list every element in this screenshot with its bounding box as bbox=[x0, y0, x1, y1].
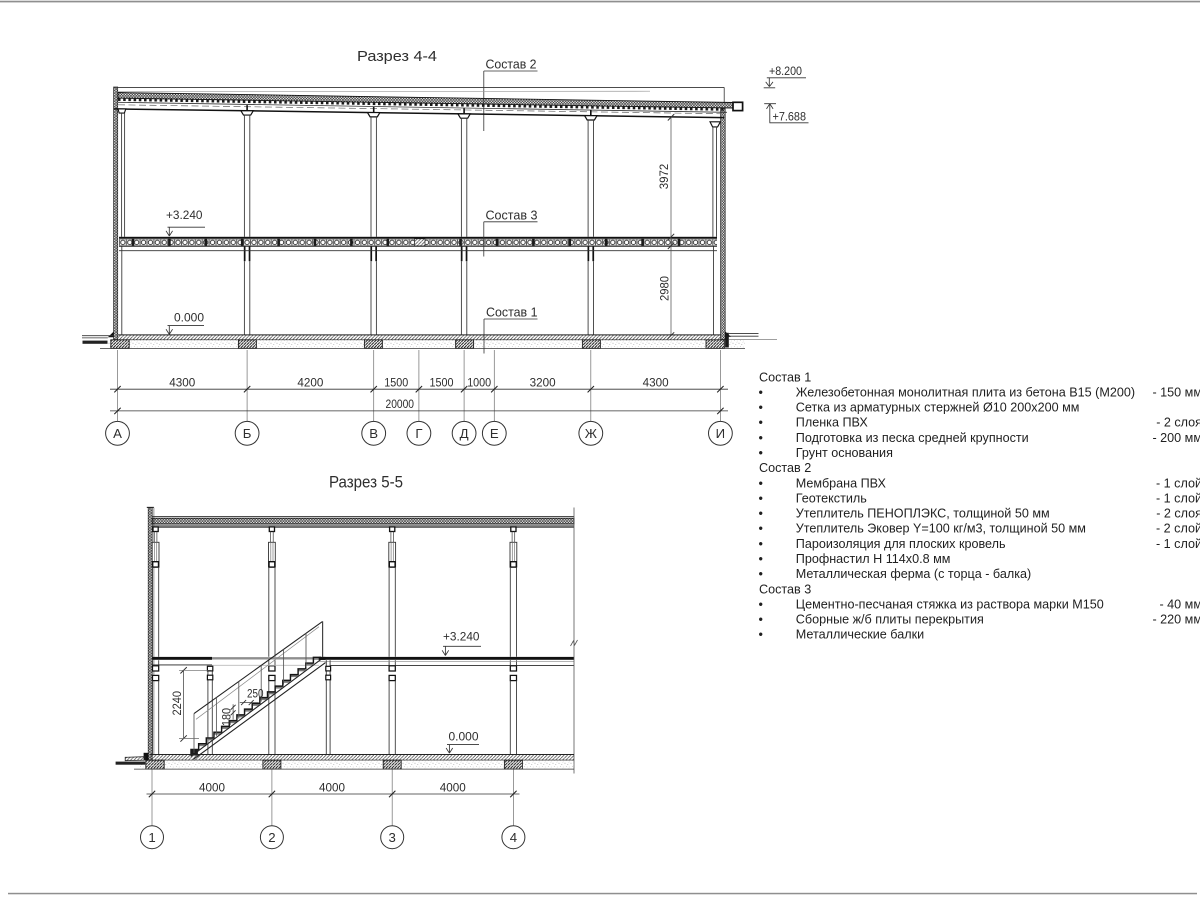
svg-text:•: • bbox=[759, 385, 763, 399]
svg-text:1000: 1000 bbox=[467, 375, 491, 389]
svg-text:1500: 1500 bbox=[430, 375, 454, 389]
svg-text:•: • bbox=[759, 491, 763, 505]
svg-text:Грунт основания: Грунт основания bbox=[796, 446, 893, 460]
svg-text:Разрез 5-5: Разрез 5-5 bbox=[329, 473, 403, 492]
svg-text:1500: 1500 bbox=[384, 375, 408, 389]
svg-text:•: • bbox=[759, 537, 763, 551]
svg-text:В: В bbox=[369, 426, 378, 441]
svg-text:Состав 3: Состав 3 bbox=[759, 582, 811, 596]
svg-text:3200: 3200 bbox=[530, 375, 556, 389]
svg-text:20000: 20000 bbox=[386, 397, 415, 411]
svg-text:- 150 мм: - 150 мм bbox=[1152, 385, 1200, 399]
svg-text:4300: 4300 bbox=[169, 375, 195, 389]
svg-text:0.000: 0.000 bbox=[449, 730, 479, 744]
svg-text:250: 250 bbox=[247, 686, 264, 700]
svg-text:Утеплитель Эковер Y=100 кг/м3,: Утеплитель Эковер Y=100 кг/м3, толщиной … bbox=[796, 522, 1086, 536]
svg-text:2980: 2980 bbox=[657, 276, 671, 301]
svg-text:•: • bbox=[759, 522, 763, 536]
svg-text:+8.200: +8.200 bbox=[769, 64, 802, 78]
svg-text:Мембрана ПВХ: Мембрана ПВХ bbox=[796, 476, 887, 490]
svg-text:Разрез 4-4: Разрез 4-4 bbox=[357, 48, 437, 65]
svg-text:Д: Д bbox=[460, 426, 469, 441]
svg-text:Сетка из арматурных стержней Ø: Сетка из арматурных стержней Ø10 200x200… bbox=[796, 401, 1080, 415]
svg-text:•: • bbox=[759, 431, 763, 445]
svg-text:Металлическая ферма (с торца -: Металлическая ферма (с торца - балка) bbox=[796, 567, 1031, 581]
svg-text:Ж: Ж bbox=[585, 426, 597, 441]
svg-text:+3.240: +3.240 bbox=[443, 629, 480, 643]
svg-text:•: • bbox=[759, 613, 763, 627]
svg-text:3972: 3972 bbox=[657, 164, 671, 190]
svg-text:•: • bbox=[759, 597, 763, 611]
svg-text:Профнастил Н 114x0.8 мм: Профнастил Н 114x0.8 мм bbox=[796, 552, 951, 566]
svg-text:Состав 1: Состав 1 bbox=[759, 370, 811, 384]
svg-text:- 1 слой: - 1 слой bbox=[1156, 537, 1200, 551]
svg-text:Пленка ПВХ: Пленка ПВХ bbox=[796, 416, 869, 430]
svg-text:4200: 4200 bbox=[297, 375, 323, 389]
svg-text:4300: 4300 bbox=[643, 375, 669, 389]
svg-text:0.000: 0.000 bbox=[174, 310, 204, 324]
svg-text:- 2 слоя: - 2 слоя bbox=[1156, 507, 1200, 521]
svg-text:2240: 2240 bbox=[170, 691, 184, 716]
svg-text:•: • bbox=[759, 567, 763, 581]
svg-text:2: 2 bbox=[268, 830, 275, 845]
svg-text:4000: 4000 bbox=[440, 780, 466, 794]
svg-text:4000: 4000 bbox=[319, 780, 345, 794]
svg-text:Состав 1: Состав 1 bbox=[486, 305, 538, 320]
svg-text:•: • bbox=[759, 416, 763, 430]
svg-text:Цементно-песчаная стяжка из ра: Цементно-песчаная стяжка из раствора мар… bbox=[796, 597, 1104, 611]
svg-text:Подготовка из песка средней кр: Подготовка из песка средней крупности bbox=[796, 431, 1029, 445]
svg-text:Состав 2: Состав 2 bbox=[486, 57, 537, 72]
svg-text:Состав 3: Состав 3 bbox=[486, 207, 538, 222]
svg-text:Металлические балки: Металлические балки bbox=[796, 628, 924, 642]
svg-text:180: 180 bbox=[220, 708, 234, 726]
svg-text:•: • bbox=[759, 401, 763, 415]
svg-text:- 1 слой: - 1 слой bbox=[1156, 476, 1200, 490]
svg-text:Геотекстиль: Геотекстиль bbox=[796, 491, 867, 505]
svg-text:•: • bbox=[759, 476, 763, 490]
svg-text:- 200 мм: - 200 мм bbox=[1152, 431, 1200, 445]
svg-text:•: • bbox=[759, 552, 763, 566]
svg-text:- 1 слой: - 1 слой bbox=[1156, 491, 1200, 505]
svg-text:+3.240: +3.240 bbox=[166, 208, 203, 222]
svg-text:Утеплитель ПЕНОПЛЭКС, толщиной: Утеплитель ПЕНОПЛЭКС, толщиной 50 мм bbox=[796, 507, 1050, 521]
svg-text:- 2 слоя: - 2 слоя bbox=[1156, 416, 1200, 430]
svg-text:1: 1 bbox=[148, 830, 155, 845]
svg-text:Железобетонная монолитная плит: Железобетонная монолитная плита из бетон… bbox=[796, 385, 1135, 399]
svg-text:- 220 мм: - 220 мм bbox=[1152, 613, 1200, 627]
svg-text:А: А bbox=[113, 426, 122, 441]
svg-text:Пароизоляция для плоских крове: Пароизоляция для плоских кровель bbox=[796, 537, 1006, 551]
svg-text:Б: Б bbox=[243, 426, 252, 441]
svg-text:•: • bbox=[759, 507, 763, 521]
svg-text:- 40 мм: - 40 мм bbox=[1159, 597, 1200, 611]
svg-text:Сборные ж/б плиты перекрытия: Сборные ж/б плиты перекрытия bbox=[796, 613, 984, 627]
svg-text:4000: 4000 bbox=[199, 780, 225, 794]
svg-text:- 2 слой: - 2 слой bbox=[1156, 522, 1200, 536]
svg-text:+7.688: +7.688 bbox=[773, 110, 807, 124]
svg-text:•: • bbox=[759, 628, 763, 642]
svg-text:3: 3 bbox=[389, 830, 396, 845]
svg-text:•: • bbox=[759, 446, 763, 460]
svg-text:4: 4 bbox=[510, 830, 517, 845]
svg-text:Состав 2: Состав 2 bbox=[759, 461, 811, 475]
svg-text:И: И bbox=[716, 426, 725, 441]
svg-text:Г: Г bbox=[415, 426, 422, 441]
svg-text:Е: Е bbox=[490, 426, 499, 441]
